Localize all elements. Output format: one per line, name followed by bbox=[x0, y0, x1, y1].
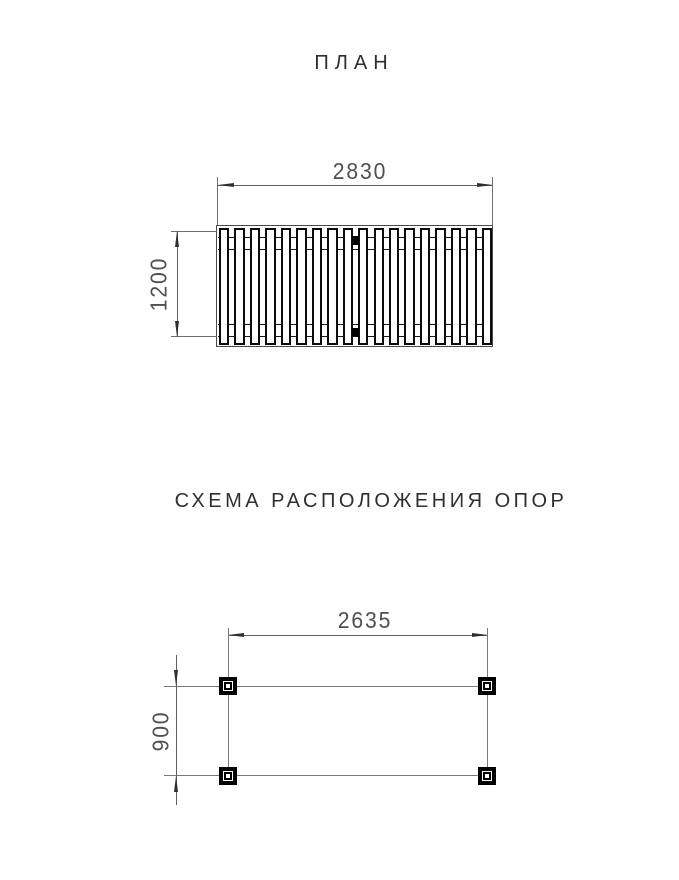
posts-line-left bbox=[228, 628, 229, 776]
dim-arrow-down-icon bbox=[175, 321, 179, 337]
plan-width-dim-label: 2830 bbox=[333, 160, 387, 183]
post-inner-square bbox=[224, 682, 232, 690]
dim-arrow-down-icon bbox=[174, 670, 178, 686]
plan-width-extension-right bbox=[492, 177, 493, 226]
bench-slat bbox=[404, 228, 414, 345]
plan-title: ПЛАН bbox=[314, 52, 393, 75]
bench-slat bbox=[234, 228, 244, 345]
bench-slat bbox=[327, 228, 337, 345]
bench-slat bbox=[296, 228, 306, 345]
bench-slat bbox=[482, 228, 492, 345]
plan-depth-dim-label: 1200 bbox=[148, 257, 171, 311]
plan-width-extension-left bbox=[217, 177, 218, 226]
posts-line-right bbox=[487, 628, 488, 776]
posts-line-top bbox=[164, 686, 488, 687]
dim-arrow-up-icon bbox=[175, 231, 179, 247]
supports-width-dim-label: 2635 bbox=[338, 609, 392, 632]
dim-arrow-right-icon bbox=[472, 633, 488, 637]
bench-slat bbox=[312, 228, 322, 345]
dim-arrow-left-icon bbox=[218, 183, 234, 187]
post-inner-square bbox=[224, 772, 232, 780]
bench-slat bbox=[281, 228, 291, 345]
support-post-bottom-left bbox=[219, 767, 237, 785]
bench-slat bbox=[358, 228, 368, 345]
fixing-point-bottom bbox=[352, 328, 359, 337]
support-post-bottom-right bbox=[478, 767, 496, 785]
bench-slat bbox=[435, 228, 445, 345]
post-inner-square bbox=[483, 772, 491, 780]
plan-width-dim-line bbox=[218, 185, 493, 186]
bench-slat bbox=[250, 228, 260, 345]
bench-slat bbox=[265, 228, 275, 345]
supports-title: СХЕМА РАСПОЛОЖЕНИЯ ОПОР bbox=[175, 490, 568, 513]
support-post-top-left bbox=[219, 677, 237, 695]
posts-line-bottom bbox=[164, 775, 488, 776]
bench-slat bbox=[219, 228, 229, 345]
dim-arrow-up-icon bbox=[174, 776, 178, 792]
supports-depth-dim-label: 900 bbox=[150, 711, 173, 752]
fixing-point-top bbox=[352, 236, 359, 245]
post-inner-square bbox=[483, 682, 491, 690]
dim-arrow-left-icon bbox=[228, 633, 244, 637]
bench-slat bbox=[451, 228, 461, 345]
dim-arrow-right-icon bbox=[477, 183, 493, 187]
bench-slat bbox=[389, 228, 399, 345]
bench-slat bbox=[374, 228, 384, 345]
bench-slat bbox=[420, 228, 430, 345]
drawing-canvas: ПЛАН 2830 1200 СХЕМА РАСПОЛОЖЕНИЯ ОПОР 2… bbox=[0, 0, 679, 880]
bench-slat bbox=[466, 228, 476, 345]
supports-width-dim-line bbox=[228, 635, 488, 636]
support-post-top-right bbox=[478, 677, 496, 695]
